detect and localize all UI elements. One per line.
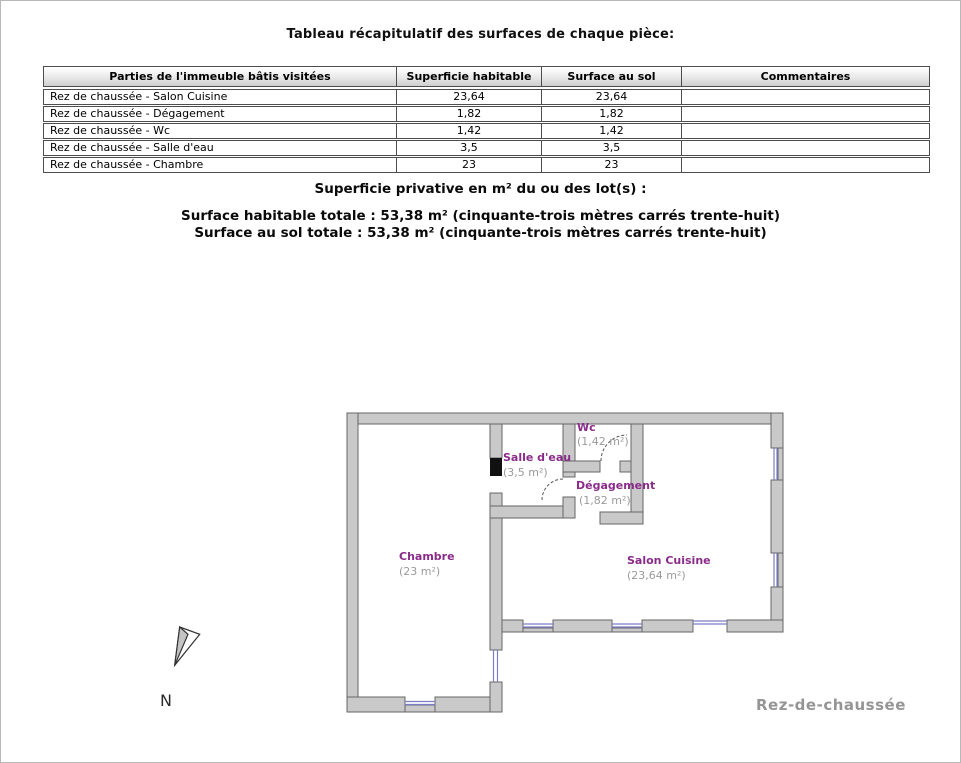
report-page: { "page": { "title": "Tableau récapitula… bbox=[0, 0, 961, 763]
cell-partie: Rez de chaussée - Dégagement bbox=[44, 107, 396, 121]
cell-habitable: 23 bbox=[396, 158, 541, 172]
table-header-row: Parties de l'immeuble bâtis visitées Sup… bbox=[43, 66, 930, 87]
table-row: Rez de chaussée - Chambre 23 23 bbox=[43, 157, 930, 173]
cell-commentaires bbox=[681, 90, 929, 104]
wall-divider-upper bbox=[490, 424, 502, 458]
room-area-degagement: (1,82 m²) bbox=[579, 494, 631, 507]
summary-privative-heading: Superficie privative en m² du ou des lot… bbox=[0, 181, 961, 197]
wall-salon-bottom bbox=[642, 620, 693, 632]
wall-right-window-sill bbox=[778, 553, 783, 587]
wall-right-top bbox=[771, 413, 783, 448]
room-label-saloncuisine: Salon Cuisine bbox=[627, 554, 711, 567]
wall-chambre-window-sill bbox=[405, 705, 435, 712]
table-row: Rez de chaussée - Salle d'eau 3,5 3,5 bbox=[43, 140, 930, 156]
room-label-wc: Wc bbox=[577, 421, 596, 434]
cell-commentaires bbox=[681, 141, 929, 155]
table-header-habitable: Superficie habitable bbox=[396, 67, 541, 86]
level-label: Rez-de-chaussée bbox=[756, 696, 906, 714]
north-arrow-icon bbox=[168, 618, 208, 673]
cell-habitable: 1,82 bbox=[396, 107, 541, 121]
summary-surface-au-sol-totale: Surface au sol totale : 53,38 m² (cinqua… bbox=[0, 225, 961, 241]
wall-degagement-bottom bbox=[600, 512, 643, 524]
wall-left bbox=[347, 413, 358, 712]
cell-sol: 1,82 bbox=[541, 107, 681, 121]
wall-right-window-sill bbox=[778, 448, 783, 480]
cell-habitable: 3,5 bbox=[396, 141, 541, 155]
cell-sol: 3,5 bbox=[541, 141, 681, 155]
wall-salledeau-right-jamb bbox=[563, 497, 575, 518]
cell-sol: 1,42 bbox=[541, 124, 681, 138]
page-title: Tableau récapitulatif des surfaces de ch… bbox=[0, 27, 961, 42]
door-swing-arc-salledeau bbox=[542, 479, 563, 500]
wall-right-mid bbox=[771, 480, 783, 553]
cell-partie: Rez de chaussée - Salon Cuisine bbox=[44, 90, 396, 104]
wall-salon-window-sill bbox=[523, 628, 553, 632]
cell-partie: Rez de chaussée - Wc bbox=[44, 124, 396, 138]
wall-salon-window-sill bbox=[612, 628, 642, 632]
wall-salon-bottom bbox=[553, 620, 612, 632]
wall-wc-right bbox=[631, 424, 643, 518]
table-header-commentaires: Commentaires bbox=[681, 67, 929, 86]
cell-habitable: 23,64 bbox=[396, 90, 541, 104]
wall-divider-lower bbox=[490, 682, 502, 712]
table-header-sol: Surface au sol bbox=[541, 67, 681, 86]
cell-habitable: 1,42 bbox=[396, 124, 541, 138]
wall-salon-bottom bbox=[727, 620, 783, 632]
summary-surface-habitable-totale: Surface habitable totale : 53,38 m² (cin… bbox=[0, 208, 961, 224]
room-label-degagement: Dégagement bbox=[576, 479, 655, 492]
cell-partie: Rez de chaussée - Salle d'eau bbox=[44, 141, 396, 155]
room-area-chambre: (23 m²) bbox=[399, 565, 440, 578]
surfaces-table: Parties de l'immeuble bâtis visitées Sup… bbox=[43, 66, 930, 173]
cell-commentaires bbox=[681, 158, 929, 172]
table-row: Rez de chaussée - Dégagement 1,82 1,82 bbox=[43, 106, 930, 122]
table-row: Rez de chaussée - Salon Cuisine 23,64 23… bbox=[43, 89, 930, 105]
room-area-saloncuisine: (23,64 m²) bbox=[627, 569, 686, 582]
table-header-parties: Parties de l'immeuble bâtis visitées bbox=[44, 67, 396, 86]
wall-top bbox=[347, 413, 783, 424]
cell-partie: Rez de chaussée - Chambre bbox=[44, 158, 396, 172]
room-area-wc: (1,42 m²) bbox=[577, 435, 629, 448]
cell-sol: 23,64 bbox=[541, 90, 681, 104]
room-label-chambre: Chambre bbox=[399, 550, 455, 563]
cell-sol: 23 bbox=[541, 158, 681, 172]
cell-commentaires bbox=[681, 107, 929, 121]
table-row: Rez de chaussée - Wc 1,42 1,42 bbox=[43, 123, 930, 139]
door-black-marker bbox=[490, 458, 502, 476]
room-label-salledeau: Salle d'eau bbox=[503, 451, 571, 464]
room-area-salledeau: (3,5 m²) bbox=[503, 466, 548, 479]
wall-salledeau-bottom bbox=[490, 506, 575, 518]
compass-north-label: N bbox=[160, 691, 172, 710]
wall-chambre-bottom-left bbox=[347, 697, 405, 712]
cell-commentaires bbox=[681, 124, 929, 138]
